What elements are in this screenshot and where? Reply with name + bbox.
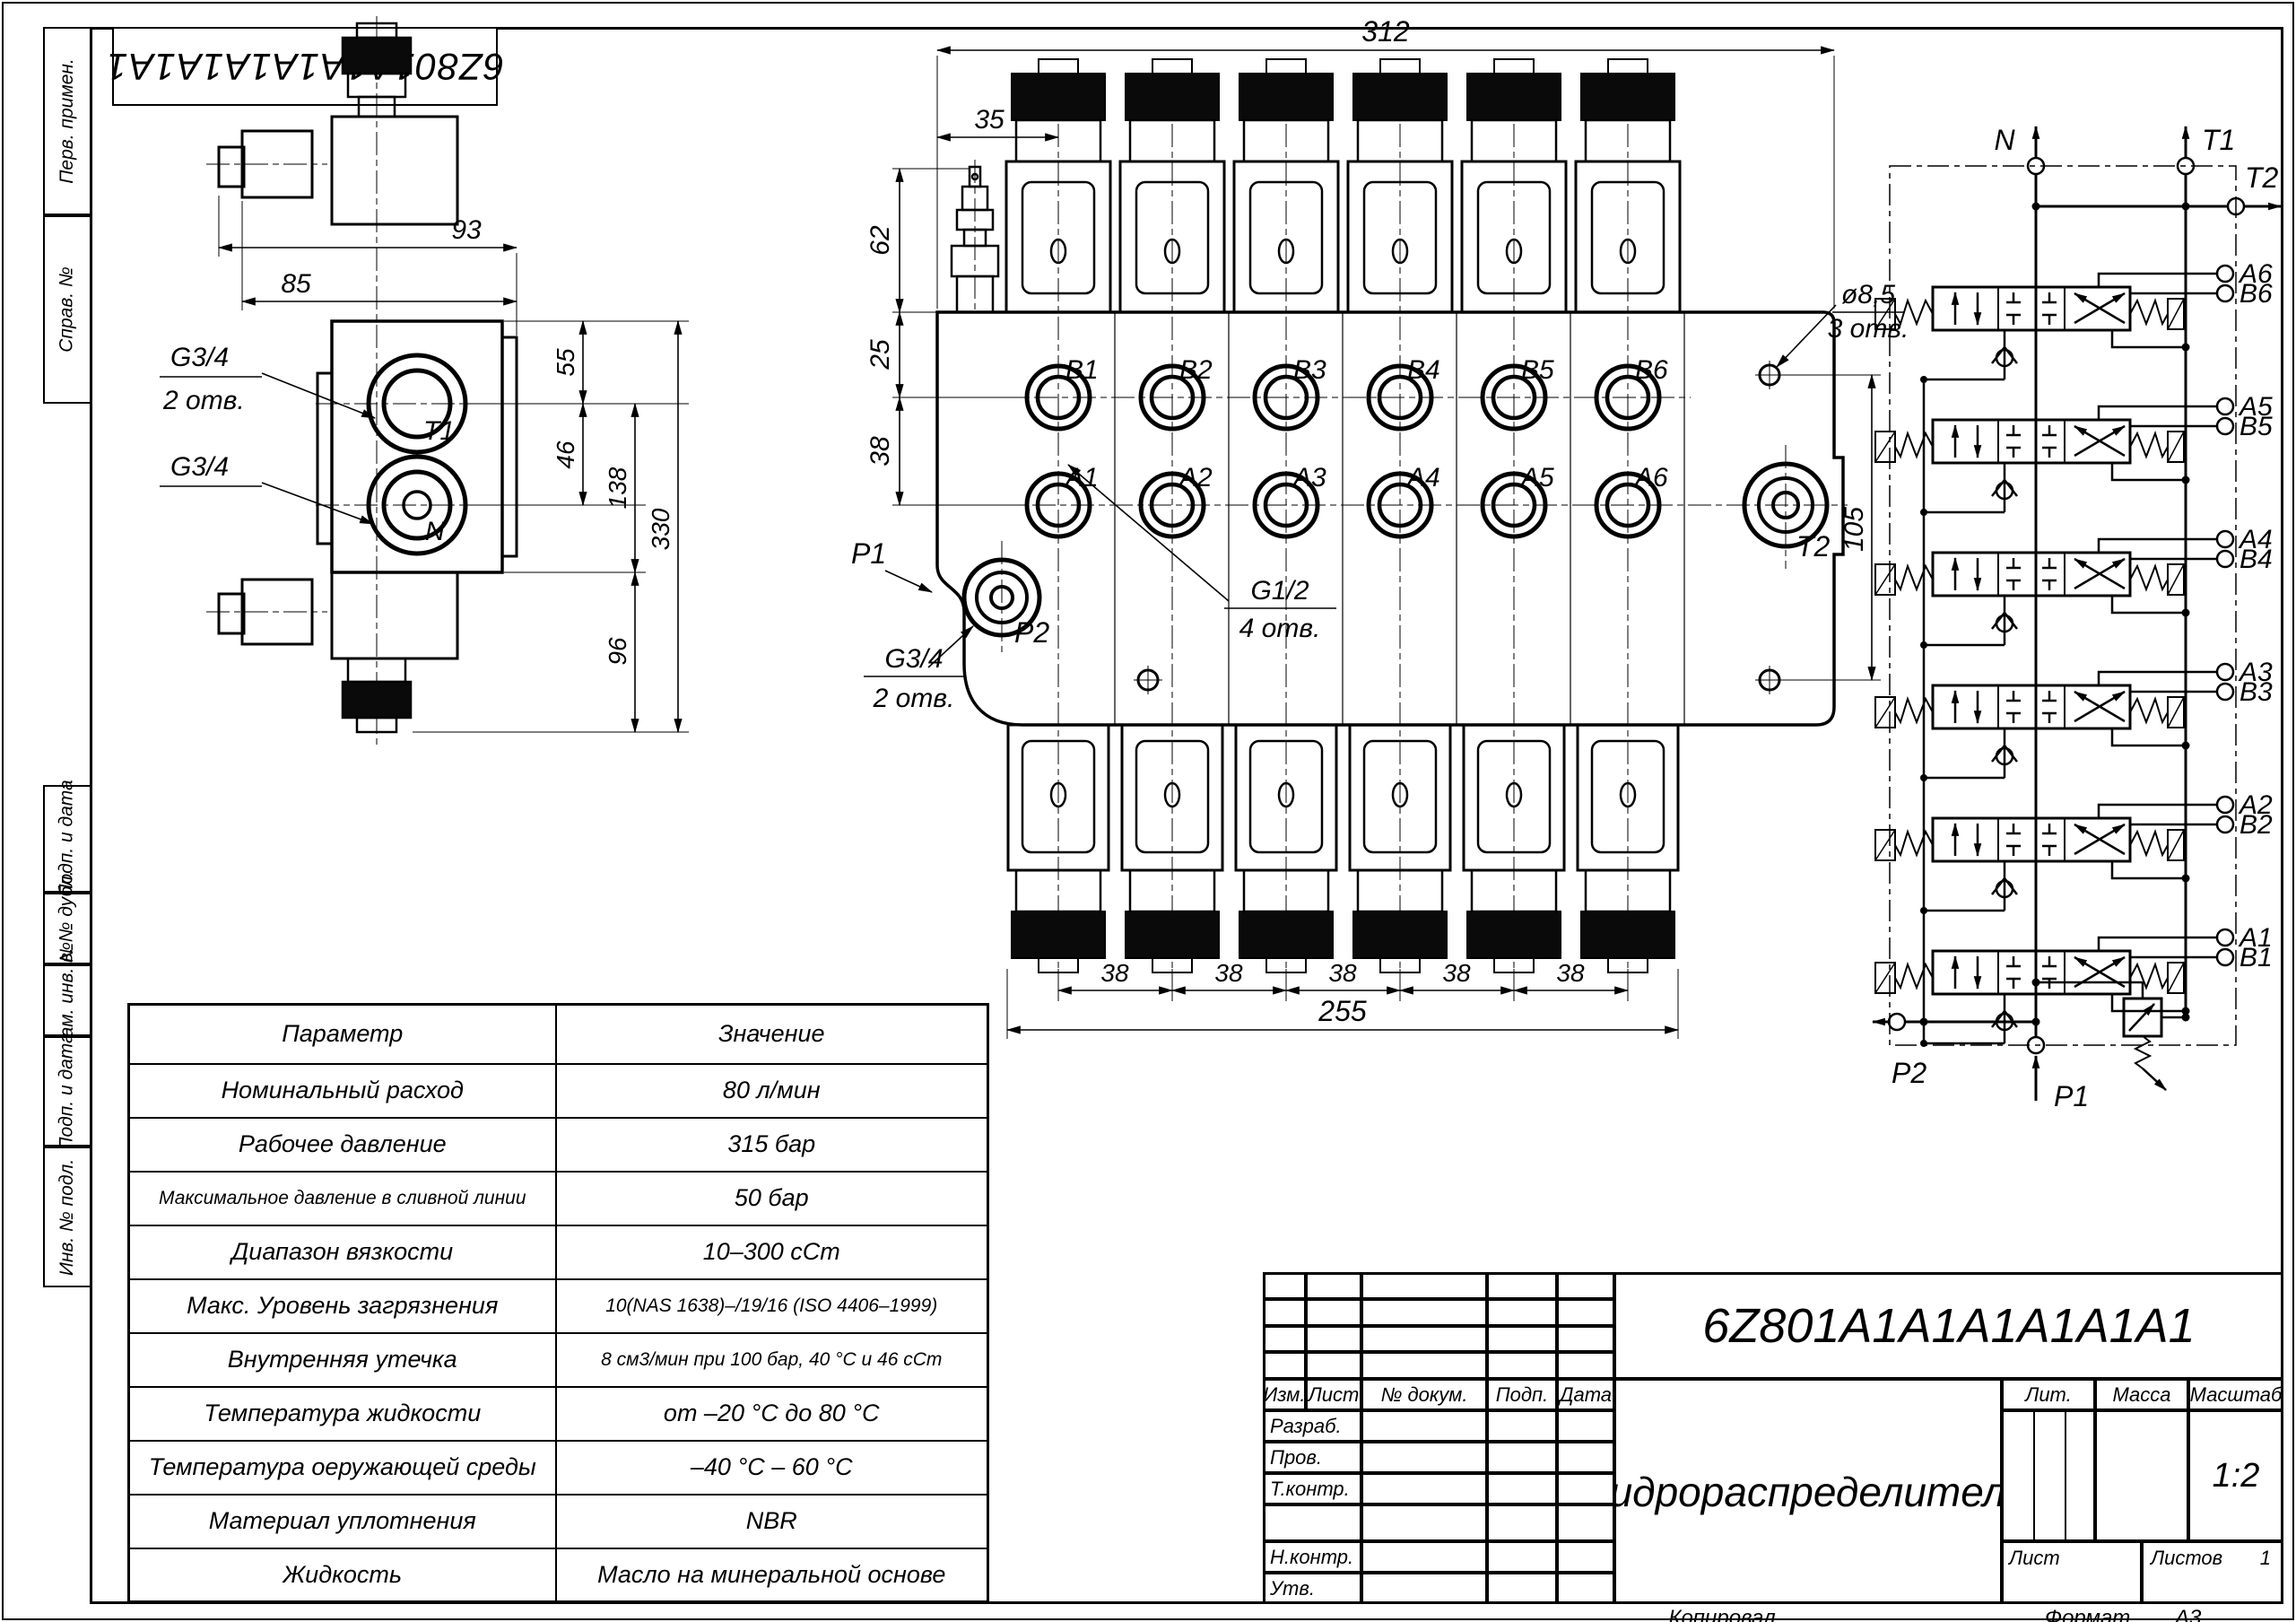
param-cell: Максимальное давление в сливной линии: [129, 1172, 556, 1225]
schematic-t2-label: T2: [2245, 161, 2279, 194]
front-mount-holes: [1134, 361, 1784, 694]
port-label-b5: B5: [1521, 355, 1554, 385]
table-row: Макс. Уровень загрязнения10(NAS 1638)–/1…: [129, 1279, 988, 1333]
tb-scale-label: Масштаб: [2188, 1379, 2283, 1410]
schematic-p1-label: P1: [2054, 1080, 2089, 1112]
value-cell: 10(NAS 1638)–/19/16 (ISO 4406–1999): [556, 1279, 988, 1333]
front-dim-312: 312: [1361, 15, 1410, 48]
tb-sheets-label: Листов: [2151, 1547, 2222, 1570]
value-header: Значение: [556, 1005, 988, 1064]
parameters-table: Параметр Значение Номинальный расход80 л…: [127, 1003, 989, 1603]
schematic-top-ports: [2028, 126, 2281, 214]
table-row: Внутренняя утечка8 см3/мин при 100 бар, …: [129, 1333, 988, 1387]
port-label-b2: B2: [1179, 355, 1213, 385]
footer-copied: Копировал: [1614, 1606, 1830, 1622]
tb-sheet-label: Лист: [2002, 1541, 2142, 1604]
table-row: Диапазон вязкости10–300 сСт: [129, 1225, 988, 1279]
value-cell: 50 бар: [556, 1172, 988, 1225]
front-pitch-2: 38: [1214, 959, 1243, 987]
side-t1-label: T1: [423, 416, 455, 446]
tb-col-list: Лист: [1306, 1379, 1361, 1410]
tb-row-nkontr: Н.контр.: [1263, 1541, 1361, 1573]
value-cell: 315 бар: [556, 1118, 988, 1172]
front-pitch-1: 38: [1100, 959, 1129, 987]
port-label-b6: B6: [1635, 355, 1668, 385]
schematic-t1-label: T1: [2202, 124, 2235, 156]
tb-lit-label: Лит.: [2002, 1379, 2095, 1410]
schematic-n-label: N: [1994, 124, 2015, 156]
side-dim-330: 330: [647, 508, 674, 550]
stamp-label: Подп. и дата: [57, 1033, 78, 1150]
side-centerlines: [206, 16, 561, 747]
tb-col-izm: Изм.: [1263, 1379, 1306, 1410]
footer-format-label: Формат: [2045, 1606, 2130, 1622]
param-cell: Материал уплотнения: [129, 1495, 556, 1548]
front-view-drawing: B1 B2 B3 B4 B5 B6 A1 A2 A3 A4 A5 A6 P2 T…: [839, 16, 1906, 1059]
front-pitch-5: 38: [1556, 959, 1585, 987]
value-cell: –40 °С – 60 °С: [556, 1441, 988, 1495]
table-row: Рабочее давление315 бар: [129, 1118, 988, 1172]
front-dim-25: 25: [865, 339, 895, 371]
side-g34-top-label: G3/4 2 отв.: [160, 343, 375, 418]
tb-row-prov: Пров.: [1263, 1442, 1361, 1473]
stamp-label: Справ. №: [57, 266, 78, 352]
param-cell: Макс. Уровень загрязнения: [129, 1279, 556, 1333]
junction-dot: [2032, 203, 2040, 211]
tb-sheets-cell: Листов 1: [2142, 1541, 2283, 1604]
svg-text:G3/4: G3/4: [170, 343, 229, 372]
param-cell: Температура жидкости: [129, 1387, 556, 1441]
sch-label-b1: B1: [2239, 943, 2273, 972]
svg-text:G3/4: G3/4: [884, 644, 943, 674]
tb-mass-label: Масса: [2095, 1379, 2188, 1410]
footer-format-value: А3: [2175, 1606, 2201, 1622]
front-centerlines: [955, 124, 1848, 976]
port-label-b1: B1: [1065, 355, 1099, 385]
value-cell: NBR: [556, 1495, 988, 1548]
port-label-a2: A2: [1178, 463, 1213, 493]
sch-label-b4: B4: [2239, 545, 2273, 574]
tb-row-tkontr: Т.контр.: [1263, 1473, 1361, 1504]
tb-col-data: Дата: [1557, 1379, 1614, 1410]
value-cell: 8 см3/мин при 100 бар, 40 °С и 46 сСт: [556, 1333, 988, 1387]
svg-text:G1/2: G1/2: [1250, 576, 1309, 606]
param-cell: Номинальный расход: [129, 1064, 556, 1118]
param-cell: Температура оеружающей среды: [129, 1441, 556, 1495]
port-label-a3: A3: [1291, 463, 1326, 493]
table-row: Материал уплотненияNBR: [129, 1495, 988, 1548]
stamp-vzam-inv: Взам. инв. №: [43, 964, 91, 1036]
stamp-perv-primen: Перв. примен.: [43, 27, 91, 215]
front-dim-105: 105: [1839, 507, 1869, 552]
front-pitch-4: 38: [1442, 959, 1471, 987]
hydraulic-schematic: N T1 T2 A6 B6 A5 B5 A4 B4 A3 B3 A2 B2 A1…: [1870, 112, 2296, 1121]
param-header: Параметр: [129, 1005, 556, 1064]
svg-text:2 отв.: 2 отв.: [162, 386, 245, 415]
port-label-a1: A1: [1064, 463, 1099, 493]
stamp-label: Перв. примен.: [57, 58, 78, 184]
front-top-sections: [1006, 59, 1680, 312]
stamp-sprav-no: Справ. №: [43, 215, 91, 404]
front-pitch-3: 38: [1328, 959, 1357, 987]
front-bottom-sections: [1008, 725, 1678, 972]
side-body: [317, 321, 517, 572]
side-dim-46: 46: [552, 440, 579, 469]
side-n-label: N: [425, 517, 445, 546]
table-row: Максимальное давление в сливной линии50 …: [129, 1172, 988, 1225]
table-row: Температура жидкостиот –20 °С до 80 °С: [129, 1387, 988, 1441]
port-label-a4: A4: [1405, 463, 1440, 493]
param-cell: Внутренняя утечка: [129, 1333, 556, 1387]
schematic-sections: [1875, 266, 2233, 1047]
param-cell: Рабочее давление: [129, 1118, 556, 1172]
port-label-a5: A5: [1519, 463, 1554, 493]
title-block: Изм. Лист № докум. Подп. Дата Разраб. Пр…: [1263, 1272, 2283, 1604]
sch-label-b3: B3: [2239, 677, 2273, 707]
tb-scale-value: 1:2: [2188, 1410, 2283, 1541]
side-dim-85: 85: [281, 269, 311, 299]
param-cell: Диапазон вязкости: [129, 1225, 556, 1279]
front-p1-label: P1: [851, 537, 886, 570]
stamp-inv-podl: Инв. № подл.: [43, 1147, 91, 1287]
port-label-b3: B3: [1293, 355, 1326, 385]
drawing-sheet: Перв. примен. Справ. № Подп. и дата Инв.…: [0, 0, 2296, 1622]
port-label-b4: B4: [1407, 355, 1440, 385]
value-cell: 10–300 сСт: [556, 1225, 988, 1279]
tb-col-dokum: № докум.: [1361, 1379, 1487, 1410]
side-view-drawing: T1 N: [108, 16, 834, 922]
sch-label-b6: B6: [2239, 279, 2273, 309]
value-cell: Масло на минеральной основе: [556, 1548, 988, 1602]
front-dim-35: 35: [974, 105, 1004, 135]
schematic-p2-label: P2: [1892, 1057, 1926, 1089]
sch-label-b2: B2: [2239, 810, 2273, 840]
front-dim-lines: [900, 50, 1872, 1030]
front-dim-62: 62: [865, 225, 895, 256]
value-cell: от –20 °С до 80 °С: [556, 1387, 988, 1441]
svg-text:G3/4: G3/4: [170, 452, 229, 482]
table-row: Номинальный расход80 л/мин: [129, 1064, 988, 1118]
tb-sheets-value: 1: [2260, 1547, 2271, 1570]
side-port-n: [369, 457, 465, 554]
table-row: Температура оеружающей среды–40 °С – 60 …: [129, 1441, 988, 1495]
side-dim-93: 93: [451, 215, 482, 245]
svg-text:2 отв.: 2 отв.: [873, 684, 955, 713]
front-t2-label: T2: [1796, 530, 1831, 562]
tb-row-razrab: Разраб.: [1263, 1410, 1361, 1442]
stamp-podp-data-2: Подп. и дата: [43, 1036, 91, 1147]
tb-document-name: Гидрораспределитель: [1614, 1379, 2002, 1604]
front-extension-lines: [892, 56, 1881, 1039]
front-dim-255: 255: [1318, 995, 1367, 1027]
sch-label-b5: B5: [2239, 412, 2273, 441]
stamp-label: Инв. № подл.: [57, 1158, 78, 1275]
junction-dot: [2182, 203, 2190, 211]
tb-lit-value: [2002, 1410, 2095, 1541]
side-dim-138: 138: [604, 467, 631, 509]
svg-text:4 отв.: 4 отв.: [1239, 614, 1321, 643]
front-dim-38: 38: [865, 436, 895, 467]
param-cell: Жидкость: [129, 1548, 556, 1602]
front-p2-label: P2: [1014, 616, 1049, 649]
side-dim-96: 96: [604, 637, 631, 666]
table-row: ЖидкостьМасло на минеральной основе: [129, 1548, 988, 1602]
tb-col-podp: Подп.: [1487, 1379, 1557, 1410]
side-bottom-solenoid: [219, 572, 457, 732]
port-label-a6: A6: [1633, 463, 1668, 493]
front-g34-label: G3/4 2 отв.: [864, 626, 973, 713]
side-top-solenoid: [219, 23, 457, 224]
tb-document-code: 6Z801A1A1A1A1A1A1: [1614, 1272, 2283, 1379]
tb-row-utv: Утв.: [1263, 1573, 1361, 1604]
side-g34-bottom-label: G3/4: [160, 452, 373, 524]
side-dim-55: 55: [552, 348, 579, 377]
table-header-row: Параметр Значение: [129, 1005, 988, 1064]
value-cell: 80 л/мин: [556, 1064, 988, 1118]
tb-mass-value: [2095, 1410, 2188, 1541]
